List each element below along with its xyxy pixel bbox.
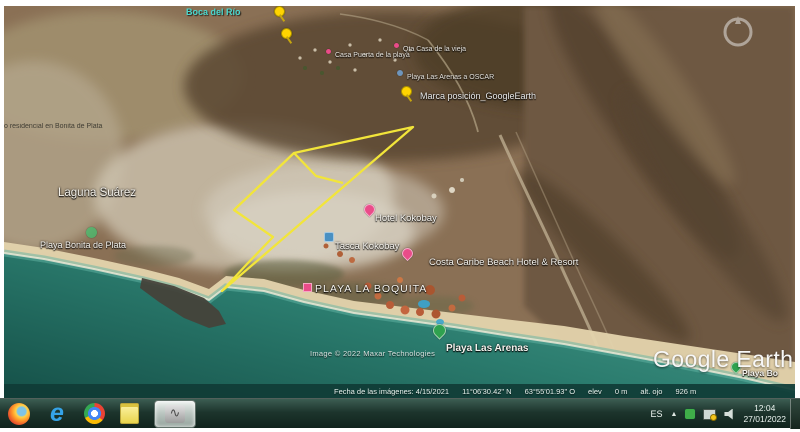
poi-pin-icon[interactable] [397,70,403,76]
yellow-pushpin-icon[interactable] [401,86,412,97]
label-boca-del-rio: Boca del Río [186,7,241,17]
clock-time: 12:04 [754,403,775,414]
statusbar: Fecha de las imágenes: 4/15/2021 11°06'3… [4,384,795,398]
placemark-label: Marca posición_GoogleEarth [420,91,536,101]
hidden-icons-arrow[interactable] [671,411,678,418]
placemark-label: Costa Caribe Beach Hotel & Resort [429,257,578,268]
placemark-label: Playa Bonita de Plata [40,240,126,250]
notes-app-icon[interactable] [120,403,139,424]
elevation-label: elev [588,387,602,396]
place-pin-icon[interactable] [86,227,97,238]
lodging-pin-icon[interactable] [326,49,331,54]
network-tray-icon[interactable] [703,409,716,420]
internet-explorer-icon[interactable] [45,402,69,426]
lodging-pin-icon[interactable] [400,246,416,262]
antivirus-tray-icon[interactable] [685,409,695,419]
chrome-icon[interactable] [84,403,105,424]
imagery-date: Fecha de las imágenes: 4/15/2021 [334,387,449,396]
placemark-casa-vieja[interactable]: Qta Casa de la vieja [394,38,466,56]
longitude: 63°55'01.93" O [525,387,575,396]
placemark-costa-caribe[interactable]: Costa Caribe Beach Hotel & Resort [400,248,578,270]
volume-tray-icon[interactable] [724,409,735,420]
placemark-label: Playa Las Arenas a OSCAR [407,74,494,81]
language-indicator[interactable]: ES [651,409,663,419]
imagery-attribution: Image © 2022 Maxar Technologies [310,349,435,358]
active-app-button[interactable] [154,400,196,428]
placemark-playa-la-boquita[interactable]: PLAYA LA BOQUITA [303,279,427,297]
place-pin-icon[interactable] [430,321,448,339]
placemark-tasca-kokobay[interactable]: Tasca Kokobay [322,232,399,254]
windows-taskbar: ES 12:04 27/01/2022 [0,398,800,428]
label-laguna-suarez: Laguna Suárez [58,187,136,199]
placemark-label: Hotel Kokobay [375,213,437,224]
google-earth-logo: Google Earth [653,346,793,373]
firefox-icon[interactable] [8,403,30,425]
placemark-hotel-kokobay[interactable]: Hotel Kokobay [362,204,437,226]
clock-date: 27/01/2022 [743,414,786,425]
placemark-playa-bonita-de-plata[interactable]: Playa Bonita de Plata [40,227,126,253]
placemark-label: Playa Las Arenas [446,343,528,354]
placemark-playa-las-arenas-a-oscar[interactable]: Playa Las Arenas a OSCAR [397,66,494,84]
yellow-pushpin-icon[interactable] [274,6,285,17]
active-app-icon [165,405,185,423]
placemark-marca-posicion[interactable]: Marca posición_GoogleEarth [401,86,536,104]
eye-altitude-value: 926 m [675,387,696,396]
taskbar-pinned-apps [8,400,196,428]
lodging-pin-icon[interactable] [394,43,399,48]
satellite-imagery [4,6,795,398]
elevation-value: 0 m [615,387,628,396]
beach-pin-icon[interactable] [303,283,312,292]
show-desktop-button[interactable] [790,399,800,429]
desktop-screen: Boca del Río Casa Puerta de la playa Qta… [0,0,800,432]
eye-altitude-label: alt. ojo [640,387,662,396]
clock[interactable]: 12:04 27/01/2022 [743,403,786,424]
placemark-playa-las-arenas[interactable]: Playa Las Arenas [431,324,528,356]
label-residencial: o residencial en Bonita de Plata [4,123,102,130]
map-canvas[interactable]: Boca del Río Casa Puerta de la playa Qta… [4,6,795,398]
latitude: 11°06'30.42" N [462,387,512,396]
restaurant-pin-icon[interactable] [324,232,334,242]
placemark-label: Qta Casa de la vieja [403,46,466,53]
placemark-label: Tasca Kokobay [335,241,399,252]
yellow-pushpin-icon[interactable] [281,28,292,39]
placemark-label: PLAYA LA BOQUITA [315,283,427,295]
system-tray: ES 12:04 27/01/2022 [651,399,787,429]
